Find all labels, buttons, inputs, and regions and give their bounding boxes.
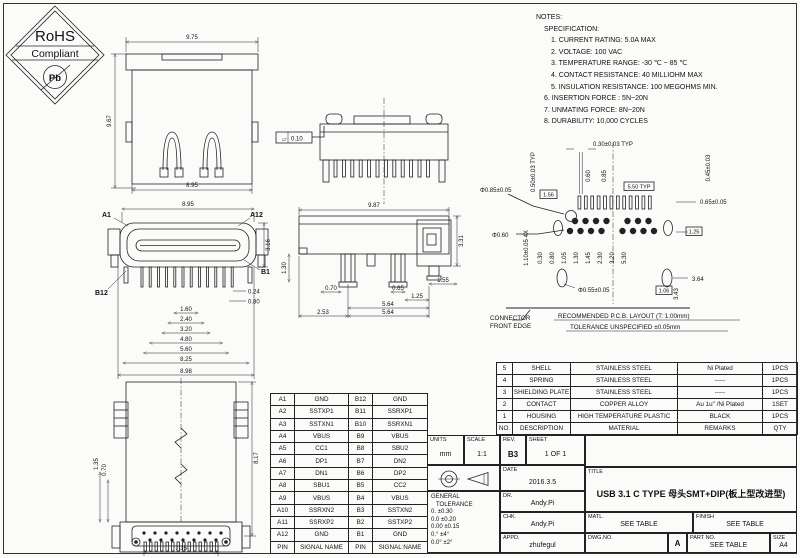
- cell: DESCRIPTION: [513, 423, 571, 435]
- spare-cell: [585, 435, 797, 467]
- dim-left-b: 0.70: [102, 464, 108, 476]
- dim-pad-len-b: 0.85: [602, 170, 608, 182]
- notes-heading: NOTES:: [536, 12, 794, 24]
- dim-bottom-hole: Φ0.55±0.05: [578, 288, 610, 294]
- note-item: 4. CONTACT RESISTANCE: 40 MILLIOHM MAX: [536, 70, 794, 82]
- dim-pitch-2: 1.05: [562, 252, 568, 264]
- dim-stack-0: 1.60: [180, 307, 192, 313]
- rev-cell: REV. B3: [500, 435, 526, 465]
- cell: A12: [271, 529, 295, 541]
- cell: A10: [271, 504, 295, 516]
- tolerance-line: 0. ±0.30: [431, 509, 499, 517]
- cell: B4: [349, 492, 373, 504]
- cell: SSTXP1: [295, 406, 349, 418]
- cell: HIGH TEMPERATURE PLASTIC: [571, 411, 678, 423]
- cell: 1SET: [763, 399, 798, 411]
- table-row: A2SSTXP1B11SSRXP1: [271, 406, 428, 418]
- cell: -----: [678, 375, 763, 387]
- pin-label-b1: B1: [261, 269, 270, 276]
- table-row: 1HOUSINGHIGH TEMPERATURE PLASTICBLACK1PC…: [497, 411, 798, 423]
- notes-block: NOTES: SPECIFICATION: 1. CURRENT RATING:…: [536, 12, 794, 128]
- cell: STAINLESS STEEL: [571, 387, 678, 399]
- dim-length: 9.87: [368, 203, 380, 209]
- date-cell: DATE 2016.3.5: [500, 465, 585, 491]
- cell: -----: [678, 387, 763, 399]
- dim-pitch-0: 0.30: [538, 252, 544, 264]
- cell: CC1: [295, 443, 349, 455]
- table-row: 5SHELLSTAINLESS STEELNi Plated1PCS: [497, 363, 798, 375]
- cell: GND: [373, 529, 428, 541]
- table-header-row: PINSIGNAL NAMEPINSIGNAL NAME: [271, 541, 428, 553]
- cell: SHELL: [513, 363, 571, 375]
- dim-pitch-1: 0.80: [550, 252, 556, 264]
- cell: DP1: [295, 455, 349, 467]
- dim-pitch-4: 1.45: [586, 252, 592, 264]
- cell: CC2: [373, 480, 428, 492]
- cell: SSRXN2: [295, 504, 349, 516]
- table-row: A7DN1B6DP2: [271, 467, 428, 479]
- dim-bottom-span: 3.64: [692, 277, 704, 283]
- title-label: TITLE: [588, 469, 603, 475]
- dim-pitch-3: 1.30: [574, 252, 580, 264]
- cell: PIN: [349, 541, 373, 553]
- dimension-lines: [108, 209, 268, 379]
- appd-value: zhufegul: [501, 538, 584, 552]
- dim-offset-a: 0.24: [248, 290, 260, 296]
- dwgno-label: DWG.NO.: [588, 535, 613, 541]
- dim-stack-3: 4.80: [180, 337, 192, 343]
- cell: SHIELDING PLATE: [513, 387, 571, 399]
- cell: GND: [295, 529, 349, 541]
- table-row: 3SHIELDING PLATESTAINLESS STEEL-----1PCS: [497, 387, 798, 399]
- dim-height: 9.67: [107, 115, 113, 127]
- cell: STAINLESS STEEL: [571, 363, 678, 375]
- view-rear: ▱ 0.10: [274, 96, 472, 208]
- matl-cell: MATL. SEE TABLE: [585, 512, 693, 533]
- cell: 4: [497, 375, 513, 387]
- rohs-text: RoHS: [35, 28, 75, 45]
- cell: SPRING: [513, 375, 571, 387]
- view-bottom: 8.17 1.35 0.70 7.35: [92, 376, 270, 556]
- cell: SBU1: [295, 480, 349, 492]
- sheet-cell: SHEET 1 OF 1: [526, 435, 585, 465]
- cell: A5: [271, 443, 295, 455]
- cell: B8: [349, 443, 373, 455]
- table-header-row: NO.DESCRIPTIONMATERIALREMARKSQTY: [497, 423, 798, 435]
- table-row: A3SSTXN1B10SSRXN1: [271, 418, 428, 430]
- compliant-text: Compliant: [31, 48, 78, 60]
- boxed-dims: [540, 182, 702, 295]
- dim-right-edge: 0.45±0.03: [706, 154, 712, 181]
- chk-cell: CHK. Andy.Pi: [500, 512, 585, 533]
- note-item: 3. TEMPERATURE RANGE: -30 ℃ ~ 85 ℃: [536, 58, 794, 70]
- flatness-value: 0.10: [291, 137, 303, 143]
- cell: VBUS: [373, 430, 428, 442]
- drawing-title: USB 3.1 C TYPE 母头SMT+DIP(板上型改进型): [586, 476, 796, 511]
- cell: 1PCS: [763, 375, 798, 387]
- cell: SSTXN1: [295, 418, 349, 430]
- cell: A7: [271, 467, 295, 479]
- dim-offset: 2.53: [317, 310, 329, 316]
- matl-value: SEE TABLE: [586, 517, 692, 532]
- cell: A1: [271, 394, 295, 406]
- cell: BLACK: [678, 411, 763, 423]
- cell: A9: [271, 492, 295, 504]
- cell: B12: [349, 394, 373, 406]
- table-row: A6DP1B7DN2: [271, 455, 428, 467]
- size-value: A4: [771, 538, 796, 552]
- cell: SIGNAL NAME: [295, 541, 349, 553]
- sheet-value: 1 OF 1: [527, 444, 584, 464]
- view-front: A1 A12 B12 B1 8.95 3.16 0.24 0.80 1.60 2…: [94, 193, 280, 383]
- cell: REMARKS: [678, 423, 763, 435]
- tolerance-line: 0.0 ±0.20: [431, 517, 499, 525]
- chk-value: Andy.Pi: [501, 517, 584, 532]
- scale-cell: SCALE 1:1: [464, 435, 500, 465]
- table-row: A11SSRXP2B2SSTXP2: [271, 516, 428, 528]
- cell: GND: [295, 394, 349, 406]
- dim-left-edge: 0.50±0.03 TYP: [531, 152, 537, 192]
- notes-subheading: SPECIFICATION:: [536, 24, 794, 36]
- dim-oval: 0.65±0.05: [700, 200, 727, 206]
- title-cell: TITLE USB 3.1 C TYPE 母头SMT+DIP(板上型改进型): [585, 467, 797, 512]
- front-edge-label-2: FRONT EDGE: [490, 323, 531, 330]
- dim-cap-height: 3.31: [459, 235, 465, 247]
- table-row: A10SSRXN2B3SSTXN2: [271, 504, 428, 516]
- dim-right-box: 1.25: [689, 230, 700, 236]
- cell: B2: [349, 516, 373, 528]
- view-side: 9.87 3.31 1.55 1.30 0.70 0.65 1.25 5.64 …: [281, 196, 477, 322]
- cell: A6: [271, 455, 295, 467]
- note-item: 6. INSERTION FORCE : 5N~20N: [536, 93, 794, 105]
- dim-width: 8.95: [182, 202, 194, 208]
- dr-value: Andy.Pi: [501, 496, 584, 511]
- pcb-note-1: RECOMMENDED P.C.B. LAYOUT (T: 1.00mm): [558, 313, 690, 320]
- dim-width-top: 9.75: [186, 35, 198, 41]
- tolerance-line: 0.0° ±2°: [431, 540, 499, 548]
- cell: NO.: [497, 423, 513, 435]
- tolerance-title-1: GENERAL: [431, 494, 499, 502]
- cell: B11: [349, 406, 373, 418]
- dim-pitch-5: 2.30: [598, 252, 604, 264]
- cell: 1PCS: [763, 387, 798, 399]
- cell: VBUS: [373, 492, 428, 504]
- units-label: UNITS: [430, 437, 447, 443]
- table-row: 4SPRINGSTAINLESS STEEL-----1PCS: [497, 375, 798, 387]
- flatness-symbol-icon: ▱: [282, 137, 287, 143]
- title-block: UNITS mm SCALE 1:1 REV. B3 SHEET 1 OF 1 …: [427, 435, 797, 553]
- cell: STAINLESS STEEL: [571, 375, 678, 387]
- units-value: mm: [428, 444, 463, 464]
- table-row: A8SBU1B5CC2: [271, 480, 428, 492]
- dim-pitch-6: 3.20: [610, 252, 616, 264]
- dim-left-mid: 1.10±0.05 4X: [524, 230, 530, 266]
- table-row: A1GNDB12GND: [271, 394, 428, 406]
- date-label: DATE: [503, 467, 517, 473]
- dim-bottom-height: 3.43: [674, 288, 680, 300]
- rev-value: B3: [501, 444, 525, 464]
- pcb-dim-lines: [506, 149, 740, 331]
- dr-cell: DR. Andy.Pi: [500, 491, 585, 512]
- cell: VBUS: [295, 430, 349, 442]
- pin-table: A1GNDB12GND A2SSTXP1B11SSRXP1 A3SSTXN1B1…: [270, 393, 428, 554]
- view-mating-face: 9.75 9.67 8.95: [106, 28, 270, 196]
- bom-table: 5SHELLSTAINLESS STEELNi Plated1PCS 4SPRI…: [496, 362, 798, 435]
- dim-bottom-box: 1.06: [659, 289, 670, 295]
- cell: MATERIAL: [571, 423, 678, 435]
- cell: SBU2: [373, 443, 428, 455]
- dim-span-b: 5.64: [382, 310, 394, 316]
- table-row: A12GNDB1GND: [271, 529, 428, 541]
- note-item: 7. UNMATING FORCE: 8N~20N: [536, 105, 794, 117]
- dim-stack-5: 8.25: [180, 357, 192, 363]
- date-value: 2016.3.5: [501, 474, 584, 490]
- cell: QTY: [763, 423, 798, 435]
- partno-cell: PART NO. SEE TABLE: [687, 533, 770, 553]
- cell: COPPER ALLOY: [571, 399, 678, 411]
- rev-label: REV.: [503, 437, 515, 443]
- dim-height: 3.16: [266, 239, 272, 251]
- cell: 1: [497, 411, 513, 423]
- tolerance-title-2: TOLERANCE: [431, 502, 499, 510]
- appd-cell: APPD. zhufegul: [500, 533, 585, 553]
- note-item: 2. VOLTAGE: 100 VAC: [536, 47, 794, 59]
- tolerance-line: 0.00 ±0.15: [431, 524, 499, 532]
- cell: HOUSING: [513, 411, 571, 423]
- pin-label-b12: B12: [95, 290, 108, 297]
- table-row: A4VBUSB9VBUS: [271, 430, 428, 442]
- dim-offset-b: 0.80: [248, 300, 260, 306]
- tolerance-cell: GENERAL TOLERANCE 0. ±0.30 0.0 ±0.20 0.0…: [427, 491, 500, 553]
- table-row: A9VBUSB4VBUS: [271, 492, 428, 504]
- cell: CONTACT: [513, 399, 571, 411]
- pcb-note-2: TOLERANCE UNSPECIFIED ±0.05mm: [570, 324, 680, 331]
- cell: A2: [271, 406, 295, 418]
- connector-outline: [126, 54, 258, 184]
- cell: B1: [349, 529, 373, 541]
- dim-left-box: 1.56: [543, 193, 554, 199]
- cell: Au 1u" /Ni Plated: [678, 399, 763, 411]
- cell: B9: [349, 430, 373, 442]
- dim-stack-1: 2.40: [180, 317, 192, 323]
- finish-value: SEE TABLE: [694, 517, 796, 532]
- cell: A3: [271, 418, 295, 430]
- rohs-logo: RoHS Compliant Pb: [2, 2, 108, 108]
- note-item: 8. DURABILITY: 10,000 CYCLES: [536, 116, 794, 128]
- cell: A8: [271, 480, 295, 492]
- pin-label-a1: A1: [102, 212, 111, 219]
- cell: A4: [271, 430, 295, 442]
- units-cell: UNITS mm: [427, 435, 464, 465]
- dim-left-diag: Φ0.60: [492, 233, 509, 239]
- cell: SSRXP2: [295, 516, 349, 528]
- third-angle-projection-icon: [436, 469, 494, 489]
- cell: GND: [373, 394, 428, 406]
- cell: B10: [349, 418, 373, 430]
- cell: VBUS: [295, 492, 349, 504]
- cell: SSRXN1: [373, 418, 428, 430]
- cell: DN1: [295, 467, 349, 479]
- dim-stack-6: 8.98: [180, 369, 192, 375]
- dim-pad-width: 0.30±0.03 TYP: [593, 142, 633, 148]
- side-outline: [299, 216, 451, 287]
- cell: SSTXP2: [373, 516, 428, 528]
- cell: A11: [271, 516, 295, 528]
- dim-left: 1.30: [282, 262, 288, 274]
- tolerance-line: 0.° ±4°: [431, 532, 499, 540]
- sheet-label: SHEET: [529, 437, 547, 443]
- dim-pitch-7: 5.30: [622, 252, 628, 264]
- dimension-lines: [111, 37, 258, 194]
- pb-text: Pb: [49, 73, 61, 84]
- cell: 3: [497, 387, 513, 399]
- dim-pad-span: 5.50 TYP: [628, 185, 651, 191]
- projection-cell: [427, 465, 500, 491]
- partno-value: SEE TABLE: [688, 538, 769, 552]
- dim-height: 8.17: [254, 452, 260, 464]
- table-row: 2CONTACTCOPPER ALLOYAu 1u" /Ni Plated1SE…: [497, 399, 798, 411]
- scale-value: 1:1: [465, 444, 499, 464]
- dim-left-a: 1.35: [94, 458, 100, 470]
- finish-cell: FINISH SEE TABLE: [693, 512, 797, 533]
- dwg-rev-cell: A: [668, 533, 687, 553]
- size-cell: SIZE A4: [770, 533, 797, 553]
- dim-leg-a: 0.70: [325, 286, 337, 292]
- cell: B7: [349, 455, 373, 467]
- dim-hole: Φ0.85±0.05: [480, 188, 512, 194]
- cell: SSRXP1: [373, 406, 428, 418]
- note-item: 5. INSULATION RESISTANCE: 100 MEGOHMS MI…: [536, 82, 794, 94]
- dim-span-a: 5.64: [382, 302, 394, 308]
- cell: B6: [349, 467, 373, 479]
- cell: 1PCS: [763, 411, 798, 423]
- bottom-outline: [112, 378, 250, 552]
- pcb-layout: 0.30±0.03 TYP 0.60 0.85 5.50 TYP 1.56 1.…: [478, 134, 798, 354]
- dimension-lines: [100, 382, 256, 556]
- cell: 1PCS: [763, 363, 798, 375]
- cell: SSTXN2: [373, 504, 428, 516]
- cell: PIN: [271, 541, 295, 553]
- dim-pitch: 1.25: [411, 294, 423, 300]
- dim-cap: 1.55: [437, 278, 449, 284]
- cell: 5: [497, 363, 513, 375]
- cell: Ni Plated: [678, 363, 763, 375]
- dim-stack-4: 5.60: [180, 347, 192, 353]
- cell: SIGNAL NAME: [373, 541, 428, 553]
- table-row: A5CC1B8SBU2: [271, 443, 428, 455]
- cell: B5: [349, 480, 373, 492]
- drawing-sheet: RoHS Compliant Pb 9.75 9.67 8.95: [0, 0, 800, 558]
- note-item: 1. CURRENT RATING: 5.0A MAX: [536, 35, 794, 47]
- dim-pad-len-a: 0.60: [586, 170, 592, 182]
- front-outline: [108, 223, 268, 287]
- pin-label-a12: A12: [250, 212, 263, 219]
- cell: DN2: [373, 455, 428, 467]
- dwg-rev-value: A: [669, 534, 686, 552]
- dwgno-cell: DWG.NO.: [585, 533, 668, 553]
- cell: 2: [497, 399, 513, 411]
- scale-label: SCALE: [467, 437, 485, 443]
- front-edge-label-1: CONNECTOR: [490, 315, 531, 322]
- cell: B3: [349, 504, 373, 516]
- dim-stack-2: 3.20: [180, 327, 192, 333]
- cell: DP2: [373, 467, 428, 479]
